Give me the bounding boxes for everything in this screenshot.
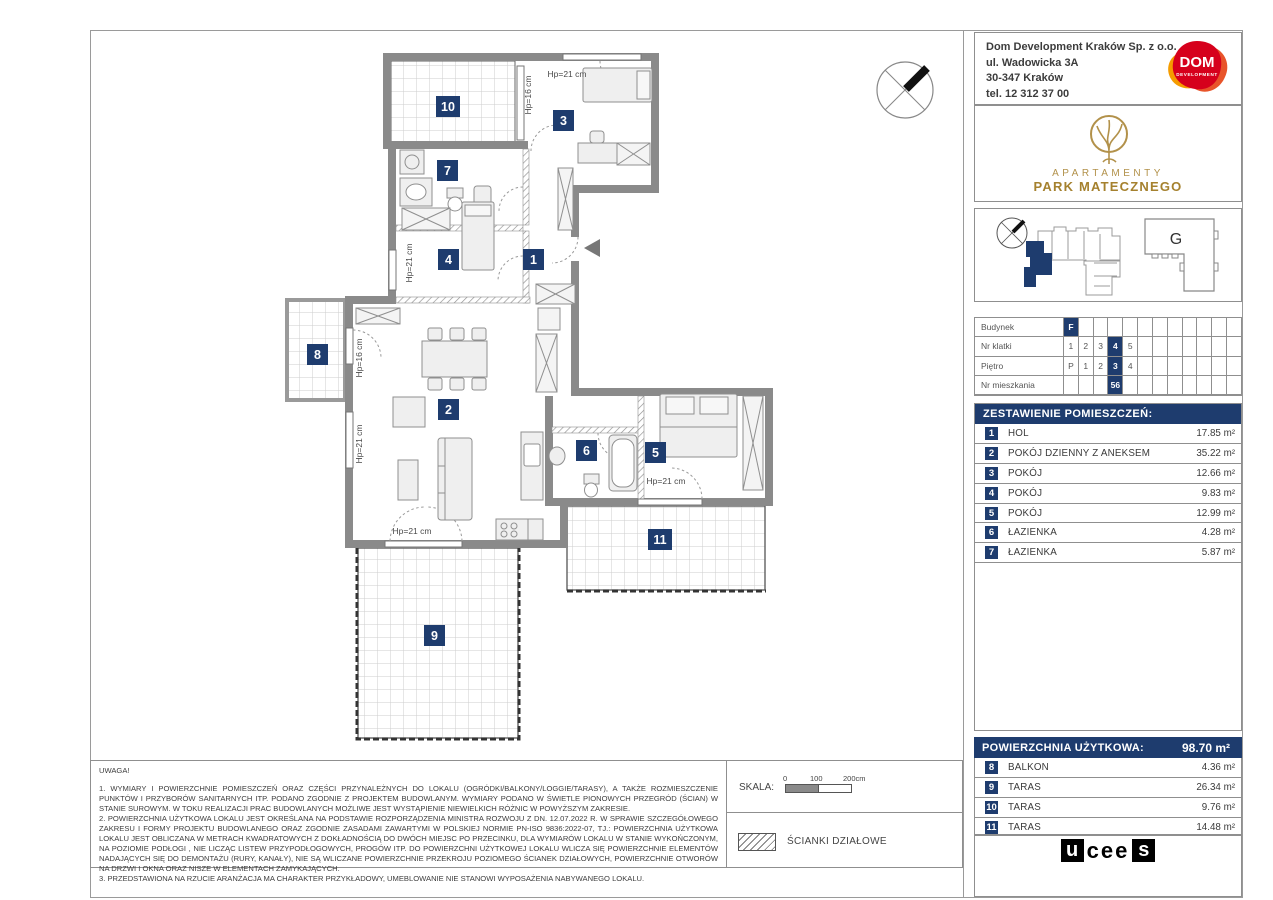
unit-grid-cell [1094,376,1109,395]
usable-area-label: POWIERZCHNIA UŻYTKOWA: [982,742,1144,754]
room-badge-11: 11 [653,533,666,547]
hp-label: Hp=16 cm [523,76,533,115]
room-badge-7: 7 [444,164,451,178]
area-row: 7ŁAZIENKA5.87 m² [975,543,1241,563]
area-row-label: HOL [1008,428,1196,439]
area-row-label: TARAS [1008,822,1196,833]
area-row-badge: 1 [985,427,998,440]
area-row: 9TARAS26.34 m² [975,778,1241,798]
company-phone: tel. 12 312 37 00 [986,87,1177,103]
unit-grid-cell: 4 [1108,337,1123,356]
unit-grid-cell [1183,357,1198,376]
rooms-header: ZESTAWIENIE POMIESZCZEŃ: [975,404,1241,424]
note-1: 1. WYMIARY I POWIERZCHNIE POMIESZCZEŃ OR… [99,784,718,814]
area-row-badge: 11 [985,821,998,834]
unit-grid-cell [1123,318,1138,337]
unit-grid-cell: 2 [1079,337,1094,356]
area-row: 1HOL17.85 m² [975,424,1241,444]
area-row-label: POKÓJ DZIENNY Z ANEKSEM [1008,448,1196,459]
site-plan: G [975,209,1241,301]
building-g-label: G [1170,231,1182,248]
room-badge-9: 9 [431,629,438,643]
partition-legend-label: ŚCIANKI DZIAŁOWE [787,836,887,847]
unit-grid-cell [1079,376,1094,395]
room-badge-1: 1 [530,253,537,267]
unit-grid-cell [1138,337,1153,356]
building-g-outline: G [1145,219,1218,291]
area-row-value: 4.28 m² [1202,527,1235,538]
unit-grid-cell [1212,337,1227,356]
unit-grid-cell [1197,337,1212,356]
area-row-badge: 4 [985,487,998,500]
area-row-label: POKÓJ [1008,488,1202,499]
unit-location-table: BudynekFNr klatki12345PiętroP1234Nr mies… [974,317,1242,396]
area-row-label: POKÓJ [1008,508,1196,519]
room-badge-4: 4 [445,253,452,267]
area-row-value: 12.99 m² [1196,508,1235,519]
room-badge-5: 5 [652,446,659,460]
scale-tick-200: 200cm [843,774,866,783]
area-row-value: 5.87 m² [1202,547,1235,558]
partition-legend-box: ŚCIANKI DZIAŁOWE [727,813,963,868]
area-row-value: 35.22 m² [1196,448,1235,459]
unit-grid-cell [1227,337,1242,356]
company-city: 30-347 Kraków [986,71,1177,87]
site-compass-icon [997,218,1027,248]
unit-grid-cell [1153,318,1168,337]
area-row: 10TARAS9.76 m² [975,798,1241,818]
floorplan-sheet: Hp=21 cm Hp=16 cm Hp=21 cm Hp=16 cm Hp=2… [0,0,1273,900]
ucees-cee: cee [1087,839,1130,862]
usable-area-value: 98.70 m² [1182,741,1230,755]
ucees-logo-box: u cee s [974,835,1242,897]
entrance-arrow [584,239,600,257]
area-row-value: 26.34 m² [1196,782,1235,793]
hp-label: Hp=21 cm [404,244,414,283]
unit-grid-cell [1197,376,1212,395]
notes-box: UWAGA! 1. WYMIARY I POWIERZCHNIE POMIESZ… [90,760,727,868]
unit-grid-label: Budynek [975,318,1064,337]
unit-grid-cell: 2 [1094,357,1109,376]
company-address: ul. Wadowicka 3A [986,56,1177,72]
area-row: 8BALKON4.36 m² [975,758,1241,778]
floor-plan: Hp=21 cm Hp=16 cm Hp=21 cm Hp=16 cm Hp=2… [90,30,963,760]
unit-grid-cell [1108,318,1123,337]
unit-grid-cell [1183,376,1198,395]
unit-grid-cell [1094,318,1109,337]
area-row-label: POKÓJ [1008,468,1196,479]
unit-grid-label: Nr klatki [975,337,1064,356]
area-row-badge: 10 [985,801,998,814]
area-row-value: 17.85 m² [1196,428,1235,439]
note-2: 2. POWIERZCHNIA UŻYTKOWA LOKALU JEST OKR… [99,814,718,874]
unit-grid-cell [1197,318,1212,337]
unit-grid-cell [1153,357,1168,376]
unit-grid-cell: 3 [1094,337,1109,356]
tree-logo-icon [1079,112,1139,168]
area-row-label: TARAS [1008,782,1196,793]
rooms-rows: 1HOL17.85 m²2POKÓJ DZIENNY Z ANEKSEM35.2… [975,424,1241,563]
unit-grid-label: Nr mieszkania [975,376,1064,395]
scale-tick-0: 0 [783,774,787,783]
branding-box: APARTAMENTY PARK MATECZNEGO [974,105,1242,202]
room-badge-10: 10 [441,100,455,114]
area-row: 3POKÓJ12.66 m² [975,464,1241,484]
hp-label: Hp=16 cm [354,339,364,378]
ucees-s: s [1132,839,1155,862]
unit-grid-cell: 3 [1108,357,1123,376]
unit-grid: BudynekFNr klatki12345PiętroP1234Nr mies… [975,318,1241,395]
unit-grid-cell [1212,318,1227,337]
area-row: 4POKÓJ9.83 m² [975,484,1241,504]
area-row-value: 14.48 m² [1196,822,1235,833]
brand-apartamenty: APARTAMENTY [975,168,1241,179]
unit-grid-cell [1227,376,1242,395]
compass-icon [877,62,933,118]
area-row-value: 9.76 m² [1202,802,1235,813]
unit-grid-cell [1138,376,1153,395]
unit-grid-cell [1123,376,1138,395]
unit-grid-cell [1064,376,1079,395]
room-badge-2: 2 [445,403,452,417]
unit-grid-cell [1168,357,1183,376]
usable-area-bar: POWIERZCHNIA UŻYTKOWA: 98.70 m² [974,737,1242,758]
scale-bar-filled [785,784,819,793]
room-badge-3: 3 [560,114,567,128]
scale-label: SKALA: [739,782,774,793]
area-row-badge: 8 [985,761,998,774]
unit-grid-cell [1168,376,1183,395]
area-row-label: BALKON [1008,762,1202,773]
unit-grid-cell [1168,318,1183,337]
scale-box: SKALA: 0 100 200cm [727,760,963,813]
unit-grid-cell [1138,357,1153,376]
area-row: 6ŁAZIENKA4.28 m² [975,523,1241,543]
unit-grid-cell [1212,357,1227,376]
hp-label: Hp=21 cm [548,69,587,79]
unit-grid-cell: 5 [1123,337,1138,356]
unit-grid-cell: P [1064,357,1079,376]
unit-grid-cell [1197,357,1212,376]
info-panel: Dom Development Kraków Sp. z o.o. ul. Wa… [963,30,1243,897]
area-row-value: 12.66 m² [1196,468,1235,479]
unit-grid-cell [1227,318,1242,337]
unit-grid-cell [1153,376,1168,395]
site-plan-box: G [974,208,1242,302]
area-row: 5POKÓJ12.99 m² [975,504,1241,524]
unit-grid-cell [1079,318,1094,337]
area-row-badge: 3 [985,467,998,480]
note-3: 3. PRZEDSTAWIONA NA RZUCIE ARANŻACJA MA … [99,874,718,884]
svg-text:DEVELOPMENT: DEVELOPMENT [1176,72,1218,77]
unit-grid-cell [1138,318,1153,337]
unit-grid-cell: 56 [1108,376,1123,395]
area-row-label: ŁAZIENKA [1008,547,1202,558]
area-row-label: ŁAZIENKA [1008,527,1202,538]
ucees-logo: u cee s [1061,839,1156,862]
outdoor-areas-box: 8BALKON4.36 m²9TARAS26.34 m²10TARAS9.76 … [974,758,1242,835]
unit-grid-label: Piętro [975,357,1064,376]
partition-walls [396,149,644,500]
company-box: Dom Development Kraków Sp. z o.o. ul. Wa… [974,32,1242,105]
area-row-value: 9.83 m² [1202,488,1235,499]
dom-development-logo-icon: DOM DEVELOPMENT [1161,39,1233,101]
svg-text:DOM: DOM [1180,54,1215,71]
unit-grid-cell [1183,337,1198,356]
area-row-value: 4.36 m² [1202,762,1235,773]
scale-bar-empty [818,784,852,793]
unit-grid-cell [1212,376,1227,395]
partition-hatch-swatch [738,833,776,851]
hp-label: Hp=21 cm [393,526,432,536]
ucees-u: u [1061,839,1084,862]
area-row-label: TARAS [1008,802,1202,813]
outdoor-rows: 8BALKON4.36 m²9TARAS26.34 m²10TARAS9.76 … [975,758,1241,838]
company-name: Dom Development Kraków Sp. z o.o. [986,40,1177,56]
area-row-badge: 2 [985,447,998,460]
unit-grid-cell: 1 [1079,357,1094,376]
room-badge-8: 8 [314,348,321,362]
unit-grid-cell [1183,318,1198,337]
room-badge-6: 6 [583,444,590,458]
rooms-box: ZESTAWIENIE POMIESZCZEŃ: 1HOL17.85 m²2PO… [974,403,1242,731]
unit-grid-cell: 4 [1123,357,1138,376]
hp-label: Hp=21 cm [647,476,686,486]
area-row-badge: 5 [985,507,998,520]
brand-park-matecznego: PARK MATECZNEGO [975,179,1241,194]
unit-grid-cell: 1 [1064,337,1079,356]
scale-tick-100: 100 [810,774,823,783]
area-row: 2POKÓJ DZIENNY Z ANEKSEM35.22 m² [975,444,1241,464]
notes-title: UWAGA! [99,766,718,776]
unit-grid-cell [1168,337,1183,356]
unit-grid-cell [1153,337,1168,356]
area-row-badge: 7 [985,546,998,559]
hp-label: Hp=21 cm [354,425,364,464]
unit-grid-cell [1227,357,1242,376]
area-row-badge: 9 [985,781,998,794]
unit-grid-cell: F [1064,318,1079,337]
area-row-badge: 6 [985,526,998,539]
